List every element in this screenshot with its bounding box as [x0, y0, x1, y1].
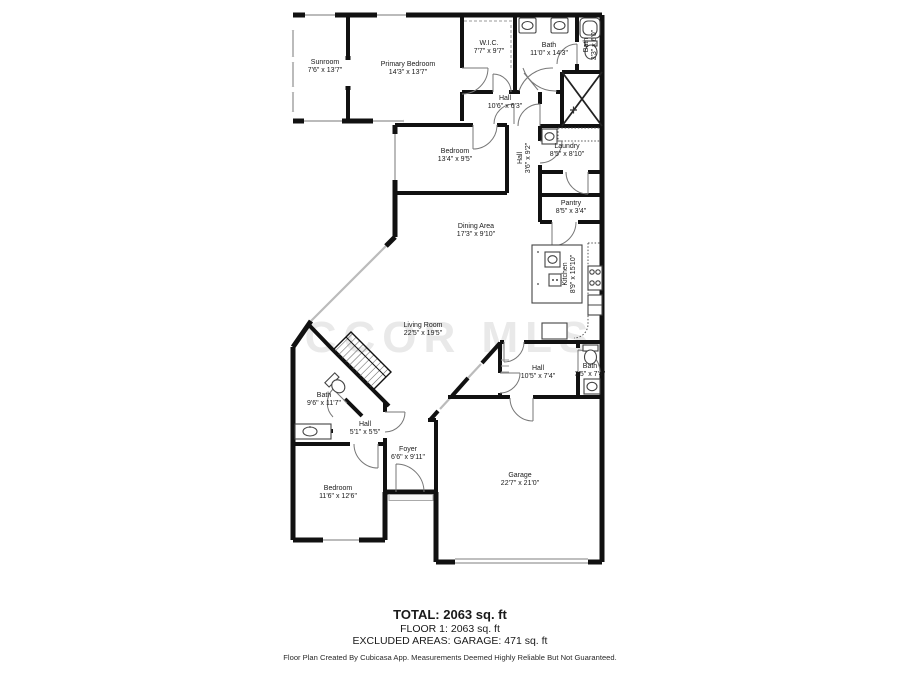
room-label-bedroom-lower: Bedroom 11'6" x 12'6" — [319, 485, 357, 500]
room-label-bath-primary: Bath 11'0" x 14'3" — [530, 42, 568, 57]
room-label-pantry: Pantry 8'5" x 3'4" — [556, 200, 587, 215]
floor1-area-text: FLOOR 1: 2063 sq. ft — [400, 623, 500, 635]
svg-text:Dining Area: Dining Area — [458, 223, 494, 230]
excluded-area-box — [562, 72, 602, 126]
svg-text:22'7" x 21'0": 22'7" x 21'0" — [501, 480, 540, 487]
svg-text:7'6" x 13'7": 7'6" x 13'7" — [308, 67, 343, 74]
room-label-hall-lower: Hall 10'5" x 7'4" — [521, 365, 556, 380]
svg-text:Bath: Bath — [317, 392, 332, 399]
svg-text:Living Room: Living Room — [404, 322, 443, 329]
svg-text:5'1" x 5'5": 5'1" x 5'5" — [350, 429, 381, 436]
room-label-bedroom-middle: Bedroom 13'4" x 9'5" — [438, 148, 473, 163]
svg-text:13'4" x 9'5": 13'4" x 9'5" — [438, 156, 473, 163]
svg-text:Hall: Hall — [517, 152, 524, 165]
svg-text:8'5" x 8'10": 8'5" x 8'10" — [550, 151, 585, 158]
svg-text:Bedroom: Bedroom — [324, 485, 353, 492]
room-label-primary-bedroom: Primary Bedroom 14'3" x 13'7" — [381, 61, 436, 76]
entry-porch — [389, 495, 433, 501]
svg-text:3'5" x 7'4": 3'5" x 7'4" — [575, 371, 606, 378]
svg-text:14'3" x 13'7": 14'3" x 13'7" — [389, 69, 428, 76]
room-label-garage: Garage 22'7" x 21'0" — [501, 472, 540, 487]
svg-text:Hall: Hall — [532, 365, 545, 372]
svg-text:Garage: Garage — [508, 472, 531, 479]
svg-text:W.I.C.: W.I.C. — [479, 40, 498, 47]
svg-text:Laundry: Laundry — [554, 143, 580, 150]
svg-text:11'0" x 14'3": 11'0" x 14'3" — [530, 50, 568, 57]
svg-text:Sunroom: Sunroom — [311, 59, 340, 66]
total-area-text: TOTAL: 2063 sq. ft — [393, 607, 507, 622]
svg-text:8'9" x 15'10": 8'9" x 15'10" — [570, 254, 577, 293]
svg-text:Foyer: Foyer — [399, 446, 418, 453]
svg-text:6'6" x 9'11": 6'6" x 9'11" — [391, 454, 425, 461]
svg-text:3'3" x 6'0": 3'3" x 6'0" — [591, 29, 598, 60]
room-label-foyer: Foyer 6'6" x 9'11" — [391, 446, 425, 461]
svg-text:22'5" x 19'5": 22'5" x 19'5" — [404, 330, 443, 337]
svg-text:9'6" x 11'7": 9'6" x 11'7" — [307, 400, 341, 407]
svg-text:Primary Bedroom: Primary Bedroom — [381, 61, 436, 68]
svg-text:Hall: Hall — [499, 95, 512, 102]
excluded-area-text: EXCLUDED AREAS: GARAGE: 471 sq. ft — [353, 635, 548, 647]
svg-text:17'3" x 9'10": 17'3" x 9'10" — [457, 231, 496, 238]
svg-text:7'7" x 9'7": 7'7" x 9'7" — [474, 48, 505, 55]
svg-text:11'6" x 12'6": 11'6" x 12'6" — [319, 493, 357, 500]
svg-text:Pantry: Pantry — [561, 200, 582, 207]
room-label-laundry: Laundry 8'5" x 8'10" — [550, 143, 585, 158]
svg-text:10'5" x 7'4": 10'5" x 7'4" — [521, 373, 556, 380]
room-label-dining-area: Dining Area 17'3" x 9'10" — [457, 223, 496, 238]
svg-text:10'6" x 6'3": 10'6" x 6'3" — [488, 103, 523, 110]
svg-text:8'5" x 3'4": 8'5" x 3'4" — [556, 208, 587, 215]
floor-plan-canvas: CCOR MLS — [0, 0, 900, 675]
floor-plan-page: { "watermark": "CCOR MLS", "rooms": { "s… — [0, 0, 900, 675]
svg-text:Hall: Hall — [359, 421, 372, 428]
svg-text:Kitchen: Kitchen — [562, 262, 569, 285]
svg-text:Bath: Bath — [583, 38, 590, 53]
room-label-wic: W.I.C. 7'7" x 9'7" — [474, 40, 505, 55]
summary-block: TOTAL: 2063 sq. ft FLOOR 1: 2063 sq. ft … — [283, 607, 616, 662]
room-label-bath-lower-left: Bath 9'6" x 11'7" — [307, 392, 341, 407]
opening-ticks — [346, 56, 351, 90]
garage-door — [455, 557, 588, 566]
room-label-hall-vertical: Hall 3'6" x 9'2" — [517, 142, 532, 173]
room-label-living-room: Living Room 22'5" x 19'5" — [404, 322, 443, 337]
room-label-hall-small: Hall 5'1" x 5'5" — [350, 421, 381, 436]
svg-text:3'6" x 9'2": 3'6" x 9'2" — [525, 142, 532, 173]
room-label-sunroom: Sunroom 7'6" x 13'7" — [308, 59, 343, 74]
fixtures — [295, 18, 602, 439]
attribution-text: Floor Plan Created By Cubicasa App. Meas… — [283, 653, 616, 662]
room-label-hall-top: Hall 10'6" x 6'3" — [488, 95, 523, 110]
svg-text:Bath: Bath — [583, 363, 598, 370]
svg-text:Bedroom: Bedroom — [441, 148, 470, 155]
svg-text:Bath: Bath — [542, 42, 557, 49]
